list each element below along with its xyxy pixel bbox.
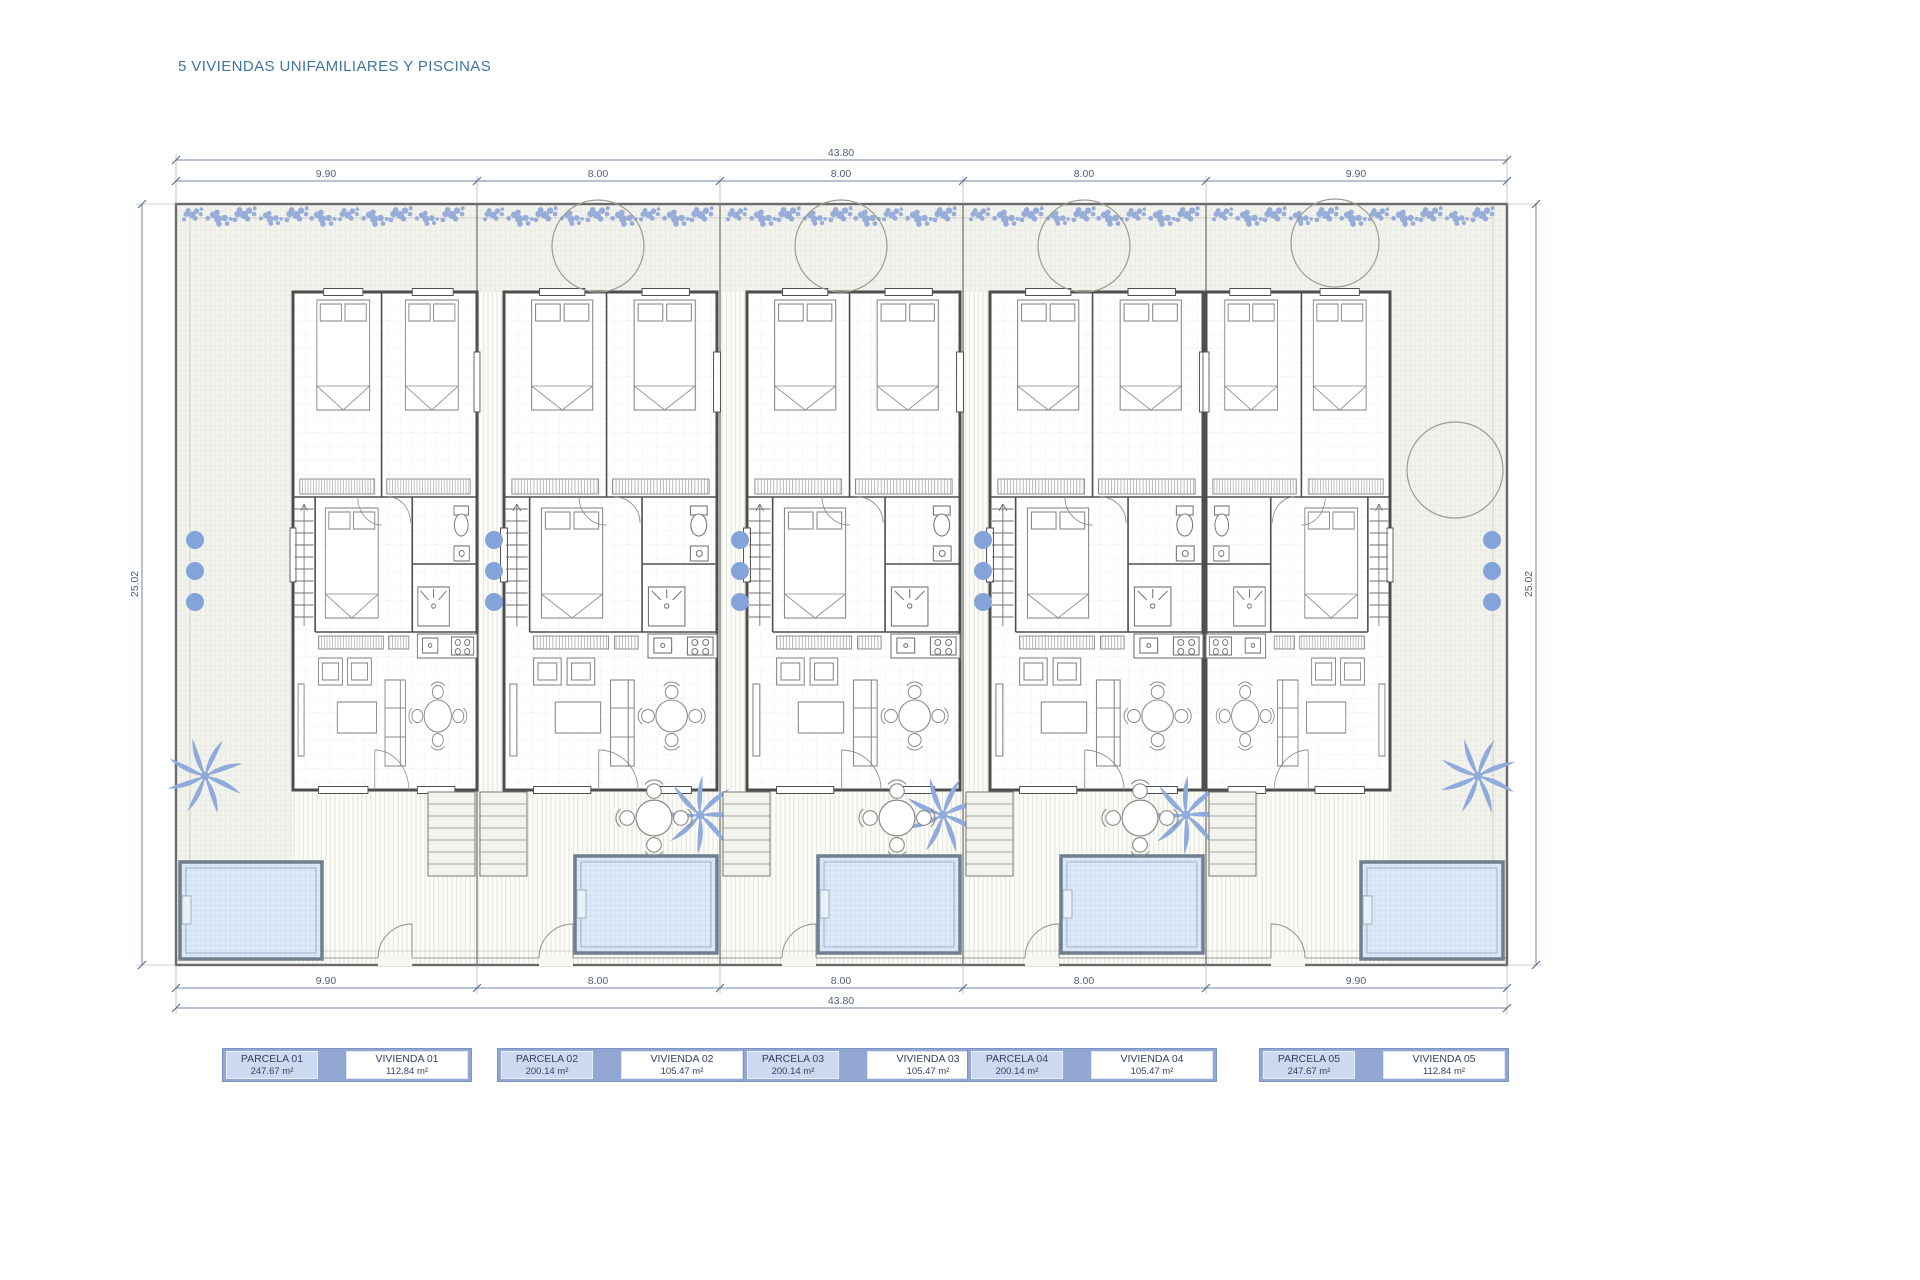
vivienda-name: VIVIENDA 05 <box>1412 1053 1475 1066</box>
parcel-label-group-4: PARCELA 04 200.14 m² VIVIENDA 04 105.47 … <box>967 1048 1217 1082</box>
vivienda-box: VIVIENDA 05 112.84 m² <box>1383 1051 1505 1079</box>
dim-left-side-label: 25.02 <box>129 571 141 597</box>
pool-4 <box>1061 856 1203 953</box>
parcela-name: PARCELA 05 <box>1278 1053 1340 1066</box>
dim-bottom-seg-4: 8.00 <box>1074 975 1095 987</box>
vivienda-area: 112.84 m² <box>386 1066 428 1077</box>
dimension-top-total: 43.80 <box>172 147 1511 164</box>
dimension-left-side: 25.02 <box>129 200 146 969</box>
dim-top-seg-5: 9.90 <box>1346 168 1367 180</box>
parcela-box: PARCELA 02 200.14 m² <box>501 1051 593 1079</box>
parcel-label-group-1: PARCELA 01 247.67 m² VIVIENDA 01 112.84 … <box>222 1048 472 1082</box>
pool-3 <box>818 856 960 953</box>
vivienda-name: VIVIENDA 01 <box>375 1053 438 1066</box>
house-unit-2 <box>501 289 721 794</box>
parcela-box: PARCELA 03 200.14 m² <box>747 1051 839 1079</box>
vivienda-box: VIVIENDA 02 105.47 m² <box>621 1051 743 1079</box>
parcela-box: PARCELA 01 247.67 m² <box>226 1051 318 1079</box>
vivienda-box: VIVIENDA 01 112.84 m² <box>346 1051 468 1079</box>
parcela-area: 247.67 m² <box>1288 1066 1331 1077</box>
drawing-sheet: 5 VIVIENDAS UNIFAMILIARES Y PISCINAS <box>0 0 1920 1280</box>
parcel-label-group-5: PARCELA 05 247.67 m² VIVIENDA 05 112.84 … <box>1259 1048 1509 1082</box>
dim-top-total-label: 43.80 <box>828 147 854 159</box>
parcela-box: PARCELA 05 247.67 m² <box>1263 1051 1355 1079</box>
parcela-name: PARCELA 02 <box>516 1053 578 1066</box>
shrub-dots <box>186 531 204 611</box>
shrub-dots <box>1483 531 1501 611</box>
parcela-name: PARCELA 01 <box>241 1053 303 1066</box>
dim-top-seg-2: 8.00 <box>588 168 609 180</box>
vivienda-name: VIVIENDA 02 <box>650 1053 713 1066</box>
dimension-bottom-segments: 9.90 8.00 8.00 8.00 9.90 <box>172 975 1511 992</box>
dim-bottom-seg-5: 9.90 <box>1346 975 1367 987</box>
vivienda-name: VIVIENDA 03 <box>896 1053 959 1066</box>
dim-right-side-label: 25.02 <box>1523 571 1535 597</box>
dim-bottom-seg-2: 8.00 <box>588 975 609 987</box>
dim-bottom-total-label: 43.80 <box>828 995 854 1007</box>
dimension-top-segments: 9.90 8.00 8.00 8.00 9.90 <box>172 168 1511 185</box>
shrub-dots <box>974 531 992 611</box>
parcela-area: 200.14 m² <box>772 1066 815 1077</box>
dim-top-seg-4: 8.00 <box>1074 168 1095 180</box>
exterior-stair <box>723 792 770 876</box>
pool-1 <box>180 862 322 959</box>
shrub-dots <box>731 531 749 611</box>
dim-top-seg-3: 8.00 <box>831 168 852 180</box>
vivienda-box: VIVIENDA 04 105.47 m² <box>1091 1051 1213 1079</box>
parcela-area: 200.14 m² <box>526 1066 569 1077</box>
parcela-box: PARCELA 04 200.14 m² <box>971 1051 1063 1079</box>
parcel-label-group-3: PARCELA 03 200.14 m² VIVIENDA 03 105.47 … <box>743 1048 993 1082</box>
dim-bottom-seg-3: 8.00 <box>831 975 852 987</box>
vivienda-area: 112.84 m² <box>1423 1066 1465 1077</box>
dimension-right-side: 25.02 <box>1523 200 1540 969</box>
exterior-stair <box>428 792 475 876</box>
exterior-stair <box>966 792 1013 876</box>
dim-top-seg-1: 9.90 <box>316 168 337 180</box>
site-plan-drawing: 43.80 9.90 8.00 8.00 8.00 9.90 9.90 8.00… <box>0 0 1920 1280</box>
parcela-area: 247.67 m² <box>251 1066 294 1077</box>
house-unit-3 <box>744 289 964 794</box>
dimension-bottom-total: 43.80 <box>172 995 1511 1012</box>
parcela-name: PARCELA 04 <box>986 1053 1048 1066</box>
vivienda-name: VIVIENDA 04 <box>1120 1053 1183 1066</box>
pool-5 <box>1361 862 1503 959</box>
parcela-area: 200.14 m² <box>996 1066 1039 1077</box>
house-unit-4 <box>987 289 1207 794</box>
parcela-name: PARCELA 03 <box>762 1053 824 1066</box>
shrub-dots <box>485 531 503 611</box>
parcel-label-group-2: PARCELA 02 200.14 m² VIVIENDA 02 105.47 … <box>497 1048 747 1082</box>
vivienda-area: 105.47 m² <box>661 1066 704 1077</box>
exterior-stair <box>1209 792 1256 876</box>
vivienda-area: 105.47 m² <box>1131 1066 1174 1077</box>
vivienda-area: 105.47 m² <box>907 1066 950 1077</box>
house-unit-5 <box>1203 289 1393 794</box>
exterior-stair <box>480 792 527 876</box>
house-unit-1 <box>290 289 480 794</box>
pool-2 <box>575 856 717 953</box>
dim-bottom-seg-1: 9.90 <box>316 975 337 987</box>
